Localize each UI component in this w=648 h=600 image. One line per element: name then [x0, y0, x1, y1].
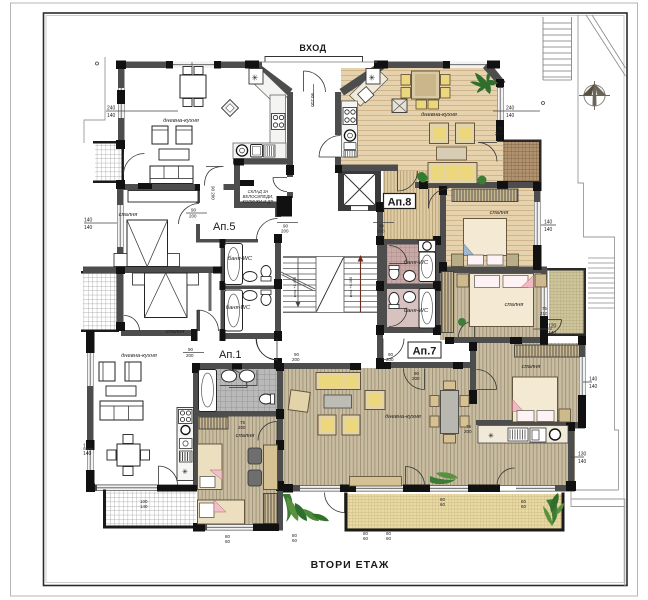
svg-text:дневна-кухня: дневна-кухня	[385, 414, 421, 420]
svg-text:спалня: спалня	[166, 329, 185, 335]
svg-text:140: 140	[83, 451, 92, 457]
svg-text:140: 140	[506, 113, 515, 119]
svg-text:140: 140	[84, 218, 93, 224]
svg-text:Ап.8: Ап.8	[388, 197, 412, 209]
svg-text:баня-WC: баня-WC	[404, 260, 429, 266]
svg-text:200: 200	[464, 429, 472, 434]
svg-text:Ап.7: Ап.7	[413, 346, 437, 358]
svg-text:Ап.1: Ап.1	[219, 349, 241, 361]
svg-text:спалня: спалня	[236, 433, 255, 439]
svg-text:✳: ✳	[252, 74, 259, 83]
svg-text:140: 140	[140, 504, 148, 509]
svg-text:130: 130	[578, 452, 587, 458]
svg-text:200: 200	[189, 214, 197, 219]
svg-text:140: 140	[544, 227, 553, 233]
svg-text:140: 140	[544, 220, 553, 226]
svg-text:баня-WC: баня-WC	[226, 305, 251, 311]
svg-text:140: 140	[548, 331, 557, 337]
svg-text:✳: ✳	[182, 468, 188, 476]
svg-text:✳: ✳	[488, 432, 494, 440]
svg-text:60: 60	[521, 504, 527, 509]
svg-text:120: 120	[548, 324, 557, 330]
svg-text:90: 90	[191, 208, 197, 213]
svg-text:дневна-кухня: дневна-кухня	[121, 353, 157, 359]
svg-text:200: 200	[386, 357, 394, 362]
svg-text:спалня: спалня	[490, 210, 509, 216]
svg-text:спалня: спалня	[505, 302, 524, 308]
svg-text:200: 200	[238, 425, 246, 430]
svg-text:200: 200	[281, 229, 289, 234]
svg-text:КОЛИЧКИ И ДР.: КОЛИЧКИ И ДР.	[242, 199, 273, 204]
svg-text:90 200: 90 200	[211, 186, 216, 200]
svg-text:240: 240	[107, 106, 116, 112]
svg-text:кота +6.460: кота +6.460	[349, 277, 353, 297]
svg-text:Ап.5: Ап.5	[213, 221, 235, 233]
svg-text:баня-WC: баня-WC	[404, 308, 429, 314]
svg-text:кота +6.460: кота +6.460	[293, 277, 297, 297]
svg-text:140: 140	[84, 225, 93, 231]
svg-text:дневна-кухня: дневна-кухня	[163, 118, 199, 124]
svg-text:60: 60	[440, 502, 446, 507]
svg-text:200: 200	[292, 357, 300, 362]
svg-text:200: 200	[186, 353, 194, 358]
svg-text:спалня: спалня	[119, 212, 138, 218]
svg-text:90: 90	[188, 347, 194, 352]
svg-text:дневна-кухня: дневна-кухня	[421, 112, 457, 118]
svg-text:200: 200	[377, 229, 385, 234]
svg-text:120: 120	[83, 444, 92, 450]
svg-text:140: 140	[578, 459, 587, 465]
svg-text:ВТОРИ ЕТАЖ: ВТОРИ ЕТАЖ	[311, 559, 390, 571]
svg-text:60: 60	[292, 538, 298, 543]
svg-text:140: 140	[589, 384, 598, 390]
svg-text:140: 140	[107, 113, 116, 119]
svg-text:ВХОД: ВХОД	[299, 43, 326, 53]
svg-text:240: 240	[506, 106, 515, 112]
svg-text:90 210: 90 210	[310, 93, 315, 107]
svg-text:60: 60	[363, 536, 369, 541]
svg-text:140: 140	[589, 377, 598, 383]
svg-text:✳: ✳	[369, 74, 376, 83]
svg-text:200: 200	[412, 376, 420, 381]
svg-text:60: 60	[225, 539, 231, 544]
svg-text:210: 210	[495, 131, 503, 136]
svg-text:60: 60	[386, 536, 392, 541]
svg-text:210: 210	[540, 311, 548, 316]
svg-text:спалня: спалня	[522, 364, 541, 370]
svg-text:баня-WC: баня-WC	[228, 256, 253, 262]
